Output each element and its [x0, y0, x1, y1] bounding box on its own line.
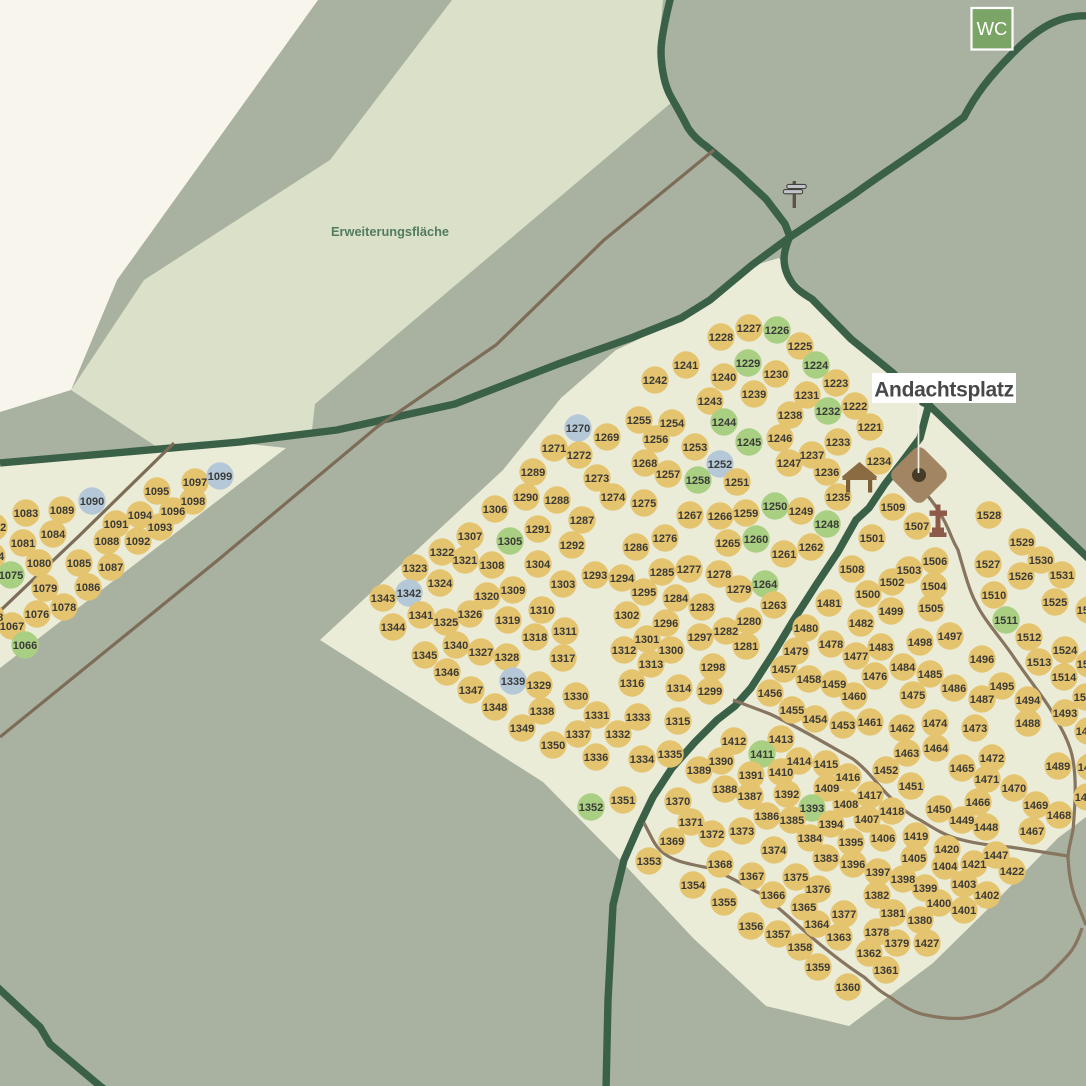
svg-text:1078: 1078	[52, 602, 76, 614]
svg-text:1298: 1298	[701, 662, 725, 674]
svg-text:1416: 1416	[836, 772, 860, 784]
svg-text:1285: 1285	[650, 567, 674, 579]
svg-text:1385: 1385	[780, 815, 804, 827]
svg-text:1341: 1341	[409, 610, 433, 622]
svg-text:Erweiterungsfläche: Erweiterungsfläche	[331, 224, 449, 239]
svg-text:1460: 1460	[842, 691, 866, 703]
svg-text:1258: 1258	[686, 475, 710, 487]
svg-text:1375: 1375	[784, 872, 808, 884]
svg-text:1335: 1335	[658, 749, 682, 761]
svg-text:1316: 1316	[620, 678, 644, 690]
svg-text:1459: 1459	[822, 679, 846, 691]
svg-text:1327: 1327	[469, 647, 493, 659]
svg-text:1267: 1267	[678, 510, 702, 522]
svg-text:1318: 1318	[523, 632, 547, 644]
svg-text:1494: 1494	[1016, 695, 1041, 707]
svg-text:1531: 1531	[1050, 570, 1074, 582]
svg-text:1337: 1337	[566, 729, 590, 741]
svg-text:1380: 1380	[908, 915, 932, 927]
svg-text:1292: 1292	[560, 540, 584, 552]
svg-text:1351: 1351	[611, 795, 635, 807]
svg-text:1301: 1301	[635, 634, 659, 646]
svg-text:1092: 1092	[126, 536, 150, 548]
svg-text:1361: 1361	[874, 965, 898, 977]
svg-text:1233: 1233	[826, 437, 850, 449]
svg-text:1248: 1248	[815, 519, 839, 531]
svg-text:1389: 1389	[687, 765, 711, 777]
svg-text:1254: 1254	[660, 418, 685, 430]
svg-text:1470: 1470	[1002, 783, 1026, 795]
svg-text:1400: 1400	[927, 898, 951, 910]
svg-text:1363: 1363	[827, 932, 851, 944]
svg-text:1511: 1511	[994, 615, 1018, 627]
svg-text:1097: 1097	[183, 477, 207, 489]
svg-text:1274: 1274	[601, 492, 626, 504]
svg-text:1331: 1331	[585, 710, 609, 722]
svg-text:Andachtsplatz: Andachtsplatz	[874, 379, 1014, 402]
svg-text:1481: 1481	[817, 598, 841, 610]
svg-text:1407: 1407	[855, 814, 879, 826]
svg-text:1320: 1320	[475, 591, 499, 603]
svg-text:1383: 1383	[814, 853, 838, 865]
svg-text:1376: 1376	[806, 884, 830, 896]
svg-text:1528: 1528	[977, 510, 1001, 522]
svg-text:1506: 1506	[923, 556, 947, 568]
svg-text:1352: 1352	[579, 802, 603, 814]
svg-text:1401: 1401	[952, 905, 976, 917]
svg-text:1497: 1497	[938, 631, 962, 643]
svg-text:1323: 1323	[403, 563, 427, 575]
svg-text:1455: 1455	[780, 705, 804, 717]
svg-text:1345: 1345	[413, 650, 437, 662]
svg-text:1483: 1483	[869, 642, 893, 654]
svg-text:1231: 1231	[795, 390, 819, 402]
svg-text:1262: 1262	[799, 542, 823, 554]
svg-text:1462: 1462	[890, 723, 914, 735]
svg-text:1241: 1241	[674, 360, 698, 372]
svg-text:1325: 1325	[434, 617, 458, 629]
svg-text:1226: 1226	[765, 325, 789, 337]
svg-text:1454: 1454	[803, 714, 828, 726]
svg-text:1374: 1374	[762, 845, 787, 857]
svg-text:1261: 1261	[772, 549, 796, 561]
svg-text:1373: 1373	[730, 826, 754, 838]
svg-text:1387: 1387	[738, 791, 762, 803]
svg-text:1259: 1259	[734, 508, 758, 520]
svg-text:1334: 1334	[630, 754, 655, 766]
svg-text:1382: 1382	[865, 890, 889, 902]
svg-text:1508: 1508	[840, 564, 864, 576]
svg-text:1084: 1084	[41, 529, 66, 541]
svg-text:1368: 1368	[708, 859, 732, 871]
svg-text:1392: 1392	[775, 789, 799, 801]
svg-text:1353: 1353	[637, 856, 661, 868]
svg-text:1452: 1452	[874, 765, 898, 777]
svg-text:1225: 1225	[788, 341, 812, 353]
svg-text:1412: 1412	[722, 736, 746, 748]
svg-text:1295: 1295	[632, 587, 656, 599]
svg-text:1349: 1349	[510, 723, 534, 735]
svg-text:1386: 1386	[755, 811, 779, 823]
svg-text:1289: 1289	[521, 467, 545, 479]
svg-text:1272: 1272	[567, 450, 591, 462]
svg-text:1247: 1247	[777, 458, 801, 470]
svg-text:1479: 1479	[784, 646, 808, 658]
svg-text:1415: 1415	[814, 759, 838, 771]
svg-text:1252: 1252	[708, 459, 732, 471]
svg-text:1453: 1453	[831, 720, 855, 732]
svg-text:1356: 1356	[739, 921, 763, 933]
svg-text:1294: 1294	[610, 573, 635, 585]
svg-text:1321: 1321	[453, 555, 477, 567]
svg-text:1489: 1489	[1046, 761, 1070, 773]
svg-text:1357: 1357	[766, 929, 790, 941]
svg-text:1366: 1366	[761, 890, 785, 902]
svg-text:1450: 1450	[927, 804, 951, 816]
svg-text:1239: 1239	[742, 389, 766, 401]
svg-text:1257: 1257	[656, 469, 680, 481]
svg-text:1409: 1409	[815, 783, 839, 795]
svg-text:1422: 1422	[1000, 866, 1024, 878]
svg-text:1229: 1229	[736, 358, 760, 370]
svg-text:1096: 1096	[161, 506, 185, 518]
svg-text:1087: 1087	[99, 562, 123, 574]
svg-text:1221: 1221	[858, 422, 882, 434]
svg-text:1377: 1377	[832, 909, 856, 921]
svg-text:1504: 1504	[922, 581, 947, 593]
svg-text:1486: 1486	[942, 683, 966, 695]
svg-text:1227: 1227	[737, 323, 761, 335]
svg-text:1340: 1340	[444, 640, 468, 652]
svg-text:1095: 1095	[145, 486, 169, 498]
svg-text:1271: 1271	[542, 443, 566, 455]
svg-text:1388: 1388	[713, 784, 737, 796]
svg-text:1246: 1246	[768, 433, 792, 445]
svg-text:1348: 1348	[483, 702, 507, 714]
svg-text:1367: 1367	[740, 871, 764, 883]
svg-text:1427: 1427	[915, 938, 939, 950]
svg-text:1082: 1082	[0, 522, 6, 534]
svg-text:1358: 1358	[788, 942, 812, 954]
svg-text:1359: 1359	[806, 962, 830, 974]
svg-text:1448: 1448	[974, 822, 998, 834]
svg-text:1515: 1515	[1074, 692, 1086, 704]
svg-text:1305: 1305	[498, 536, 522, 548]
svg-text:1354: 1354	[681, 880, 706, 892]
svg-text:1288: 1288	[545, 495, 569, 507]
svg-text:1480: 1480	[794, 623, 818, 635]
svg-text:1417: 1417	[858, 790, 882, 802]
svg-text:1240: 1240	[712, 372, 736, 384]
svg-text:1461: 1461	[858, 717, 882, 729]
svg-text:1463: 1463	[895, 748, 919, 760]
svg-text:1369: 1369	[660, 836, 684, 848]
svg-text:1411: 1411	[750, 749, 774, 761]
svg-text:1303: 1303	[551, 579, 575, 591]
svg-text:1260: 1260	[744, 534, 768, 546]
svg-text:1362: 1362	[857, 948, 881, 960]
svg-text:1364: 1364	[805, 919, 830, 931]
svg-text:1513: 1513	[1027, 657, 1051, 669]
svg-text:1478: 1478	[819, 639, 843, 651]
svg-text:1333: 1333	[626, 712, 650, 724]
svg-text:1268: 1268	[633, 458, 657, 470]
svg-text:1336: 1336	[584, 752, 608, 764]
svg-text:1395: 1395	[839, 837, 863, 849]
svg-text:1250: 1250	[763, 501, 787, 513]
svg-text:1319: 1319	[496, 615, 520, 627]
svg-text:1449: 1449	[950, 815, 974, 827]
svg-text:1287: 1287	[570, 515, 594, 527]
svg-text:1242: 1242	[643, 375, 667, 387]
svg-text:1263: 1263	[762, 600, 786, 612]
svg-text:1507: 1507	[905, 521, 929, 533]
svg-text:1230: 1230	[764, 369, 788, 381]
svg-text:1309: 1309	[501, 585, 525, 597]
svg-text:1238: 1238	[778, 410, 802, 422]
svg-text:1282: 1282	[714, 626, 738, 638]
svg-text:1468: 1468	[1047, 810, 1071, 822]
svg-text:1458: 1458	[797, 674, 821, 686]
svg-text:1503: 1503	[897, 565, 921, 577]
svg-text:1099: 1099	[208, 471, 232, 483]
svg-text:1322: 1322	[430, 547, 454, 559]
svg-text:1307: 1307	[458, 531, 482, 543]
svg-text:1394: 1394	[819, 819, 844, 831]
svg-text:1256: 1256	[644, 434, 668, 446]
svg-text:1296: 1296	[654, 618, 678, 630]
svg-text:1249: 1249	[789, 506, 813, 518]
svg-text:1371: 1371	[679, 817, 703, 829]
svg-text:1526: 1526	[1009, 571, 1033, 583]
svg-text:1408: 1408	[834, 799, 858, 811]
svg-text:1251: 1251	[725, 477, 749, 489]
svg-text:1085: 1085	[67, 558, 91, 570]
svg-text:1466: 1466	[966, 797, 990, 809]
svg-text:WC: WC	[977, 18, 1008, 39]
svg-text:1245: 1245	[737, 437, 761, 449]
svg-text:1255: 1255	[627, 415, 651, 427]
svg-text:1297: 1297	[688, 632, 712, 644]
svg-text:1529: 1529	[1010, 537, 1034, 549]
svg-text:1405: 1405	[902, 853, 926, 865]
svg-text:1075: 1075	[0, 570, 23, 582]
svg-text:1347: 1347	[459, 685, 483, 697]
svg-text:1291: 1291	[526, 524, 550, 536]
svg-text:1086: 1086	[76, 582, 100, 594]
svg-text:1338: 1338	[530, 706, 554, 718]
svg-text:1498: 1498	[908, 637, 932, 649]
svg-text:1514: 1514	[1052, 672, 1077, 684]
svg-text:1457: 1457	[772, 664, 796, 676]
svg-text:1384: 1384	[798, 833, 823, 845]
svg-text:1403: 1403	[952, 879, 976, 891]
svg-text:1302: 1302	[615, 610, 639, 622]
svg-text:1488: 1488	[1016, 718, 1040, 730]
svg-text:1312: 1312	[612, 645, 636, 657]
svg-text:1512: 1512	[1017, 632, 1041, 644]
svg-text:1339: 1339	[501, 676, 525, 688]
svg-text:1253: 1253	[683, 442, 707, 454]
svg-text:1496: 1496	[970, 654, 994, 666]
svg-text:1484: 1484	[891, 662, 916, 674]
svg-text:1523: 1523	[1077, 659, 1086, 671]
svg-text:1235: 1235	[826, 492, 850, 504]
svg-text:1342: 1342	[397, 588, 421, 600]
svg-text:1310: 1310	[530, 605, 554, 617]
svg-text:1330: 1330	[564, 691, 588, 703]
svg-text:1372: 1372	[700, 829, 724, 841]
svg-text:1243: 1243	[698, 396, 722, 408]
svg-text:1492: 1492	[1076, 726, 1086, 738]
svg-text:1500: 1500	[856, 589, 880, 601]
svg-text:1404: 1404	[933, 861, 958, 873]
svg-text:1264: 1264	[753, 579, 778, 591]
svg-text:1266: 1266	[708, 511, 732, 523]
svg-text:1313: 1313	[639, 659, 663, 671]
svg-text:1300: 1300	[659, 645, 683, 657]
svg-text:1410: 1410	[769, 767, 793, 779]
svg-text:1234: 1234	[867, 456, 892, 468]
svg-text:1284: 1284	[664, 593, 689, 605]
svg-text:1080: 1080	[27, 558, 51, 570]
svg-text:1509: 1509	[881, 502, 905, 514]
svg-text:1306: 1306	[483, 504, 507, 516]
svg-text:1326: 1326	[458, 609, 482, 621]
svg-text:1093: 1093	[148, 522, 172, 534]
svg-text:1299: 1299	[698, 686, 722, 698]
svg-text:1311: 1311	[553, 626, 577, 638]
svg-text:1379: 1379	[885, 938, 909, 950]
svg-text:1083: 1083	[14, 508, 38, 520]
svg-text:1421: 1421	[962, 859, 986, 871]
svg-text:1521: 1521	[1077, 605, 1086, 617]
svg-text:1476: 1476	[863, 671, 887, 683]
svg-text:1493: 1493	[1053, 708, 1077, 720]
svg-text:1273: 1273	[585, 473, 609, 485]
svg-text:1360: 1360	[836, 982, 860, 994]
svg-text:1317: 1317	[551, 653, 575, 665]
svg-text:1365: 1365	[792, 902, 816, 914]
svg-text:1505: 1505	[919, 603, 943, 615]
svg-text:1530: 1530	[1029, 555, 1053, 567]
svg-text:1280: 1280	[737, 616, 761, 628]
svg-text:1094: 1094	[128, 510, 153, 522]
svg-text:1283: 1283	[690, 602, 714, 614]
svg-text:1224: 1224	[804, 360, 829, 372]
svg-text:1471: 1471	[975, 774, 999, 786]
svg-text:1495: 1495	[990, 681, 1014, 693]
svg-text:1391: 1391	[739, 770, 763, 782]
svg-text:1527: 1527	[976, 559, 1000, 571]
svg-text:1237: 1237	[800, 450, 824, 462]
svg-text:1308: 1308	[480, 560, 504, 572]
svg-text:1475: 1475	[901, 690, 925, 702]
svg-text:1487: 1487	[970, 694, 994, 706]
svg-text:1501: 1501	[860, 533, 884, 545]
svg-text:1355: 1355	[712, 897, 736, 909]
svg-text:1381: 1381	[881, 908, 905, 920]
svg-text:1324: 1324	[428, 578, 453, 590]
svg-text:1088: 1088	[95, 536, 119, 548]
svg-text:1090: 1090	[80, 496, 104, 508]
svg-text:1079: 1079	[33, 583, 57, 595]
svg-text:1510: 1510	[982, 590, 1006, 602]
svg-text:1402: 1402	[975, 890, 999, 902]
svg-text:1399: 1399	[913, 883, 937, 895]
svg-text:1269: 1269	[595, 432, 619, 444]
svg-text:1419: 1419	[904, 831, 928, 843]
svg-text:1473: 1473	[963, 723, 987, 735]
svg-text:1314: 1314	[667, 683, 692, 695]
svg-text:1222: 1222	[843, 401, 867, 413]
svg-text:1485: 1485	[918, 669, 942, 681]
svg-text:1502: 1502	[880, 577, 904, 589]
svg-text:1420: 1420	[935, 844, 959, 856]
svg-text:1499: 1499	[879, 606, 903, 618]
svg-text:1276: 1276	[653, 533, 677, 545]
svg-text:1393: 1393	[800, 803, 824, 815]
svg-text:1228: 1228	[709, 332, 733, 344]
svg-text:1328: 1328	[495, 652, 519, 664]
svg-text:1406: 1406	[871, 833, 895, 845]
svg-text:1464: 1464	[924, 743, 949, 755]
svg-text:1482: 1482	[849, 618, 873, 630]
svg-text:1370: 1370	[666, 796, 690, 808]
svg-text:1089: 1089	[50, 505, 74, 517]
svg-text:1350: 1350	[541, 740, 565, 752]
svg-text:1465: 1465	[950, 763, 974, 775]
svg-text:1447: 1447	[984, 850, 1008, 862]
svg-text:1329: 1329	[527, 680, 551, 692]
svg-text:1265: 1265	[716, 538, 740, 550]
svg-text:1315: 1315	[666, 716, 690, 728]
svg-text:1286: 1286	[624, 542, 648, 554]
svg-text:1244: 1244	[712, 417, 737, 429]
svg-text:1091: 1091	[104, 519, 128, 531]
svg-text:1270: 1270	[566, 423, 590, 435]
svg-text:1456: 1456	[758, 688, 782, 700]
svg-text:1290: 1290	[514, 492, 538, 504]
svg-text:1281: 1281	[734, 641, 758, 653]
svg-text:1469: 1469	[1024, 800, 1048, 812]
svg-text:1275: 1275	[632, 498, 656, 510]
svg-text:1490: 1490	[1078, 762, 1086, 774]
svg-text:1293: 1293	[583, 570, 607, 582]
svg-text:1390: 1390	[709, 756, 733, 768]
svg-text:1223: 1223	[824, 378, 848, 390]
svg-text:1525: 1525	[1043, 597, 1067, 609]
svg-text:1397: 1397	[866, 867, 890, 879]
svg-text:1277: 1277	[677, 564, 701, 576]
svg-text:1524: 1524	[1053, 645, 1078, 657]
svg-text:1491: 1491	[1075, 792, 1086, 804]
svg-text:1332: 1332	[606, 729, 630, 741]
svg-text:1451: 1451	[899, 781, 923, 793]
svg-text:1343: 1343	[371, 593, 395, 605]
svg-text:1418: 1418	[880, 806, 904, 818]
svg-text:1472: 1472	[980, 753, 1004, 765]
svg-text:1076: 1076	[25, 609, 49, 621]
svg-text:1304: 1304	[526, 559, 551, 571]
svg-text:1413: 1413	[769, 734, 793, 746]
svg-text:1398: 1398	[891, 874, 915, 886]
svg-text:1396: 1396	[841, 859, 865, 871]
svg-text:1066: 1066	[13, 640, 37, 652]
svg-text:1477: 1477	[844, 651, 868, 663]
svg-text:1467: 1467	[1020, 826, 1044, 838]
svg-text:1279: 1279	[727, 584, 751, 596]
